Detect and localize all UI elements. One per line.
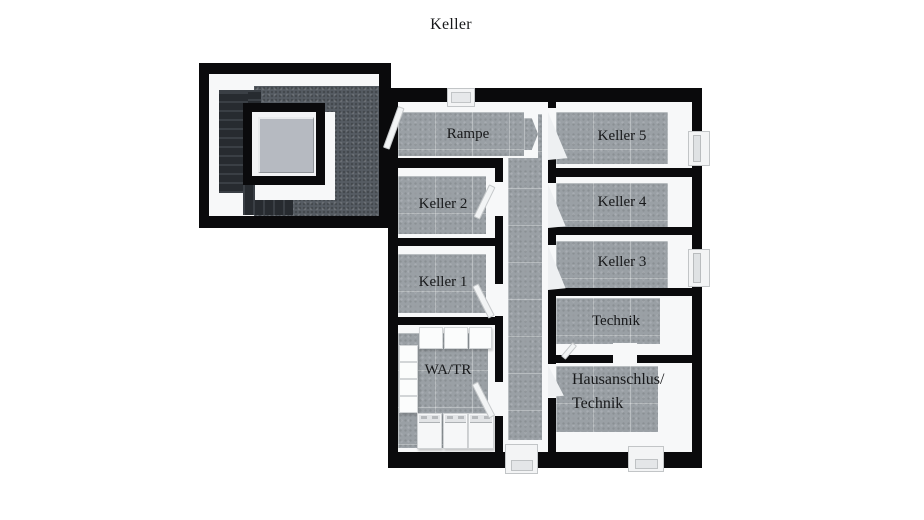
room-technik-floor xyxy=(556,298,660,344)
storage-box-icon xyxy=(399,362,418,379)
room-hausanschluss-label: Hausanschlus/ Technik xyxy=(572,368,692,416)
entrance-door-top-panel xyxy=(451,92,471,103)
storage-box-icon xyxy=(399,379,418,396)
storage-box-icon xyxy=(399,345,418,362)
door-opening-keller-1 xyxy=(495,284,508,316)
storage-box-icon xyxy=(444,327,468,349)
exit-door-corridor xyxy=(505,444,538,474)
label-hausanschluss-line1: Hausanschlus/ xyxy=(572,368,692,392)
corridor-floor xyxy=(508,114,542,440)
room-rampe-floor xyxy=(398,112,524,156)
washing-machine-icon xyxy=(443,413,468,449)
window-keller-5-icon xyxy=(688,131,710,166)
label-hausanschluss-line2: Technik xyxy=(572,392,692,416)
washing-machine-icon xyxy=(468,413,494,449)
door-opening-technik xyxy=(613,343,637,363)
room-keller-1-floor xyxy=(398,254,486,313)
room-keller-4-floor xyxy=(556,183,668,227)
exit-door-hausanschluss xyxy=(628,446,664,472)
door-opening-watr xyxy=(495,382,508,416)
washing-machine-icon xyxy=(417,413,442,449)
floorplan-keller: Keller Rampe Keller 2 Keller 1 WA/TR xyxy=(0,0,924,520)
door-opening-keller-2 xyxy=(495,182,508,216)
storage-box-icon xyxy=(469,327,492,349)
window-keller-3-icon xyxy=(688,249,710,287)
plan-title: Keller xyxy=(391,16,511,34)
storage-box-icon xyxy=(419,327,443,349)
room-keller-3-floor xyxy=(556,241,668,288)
storage-box-icon xyxy=(399,396,418,413)
room-keller-5-floor xyxy=(556,112,668,164)
elevator-cab-icon xyxy=(258,117,314,173)
room-keller-2-floor xyxy=(398,176,486,234)
